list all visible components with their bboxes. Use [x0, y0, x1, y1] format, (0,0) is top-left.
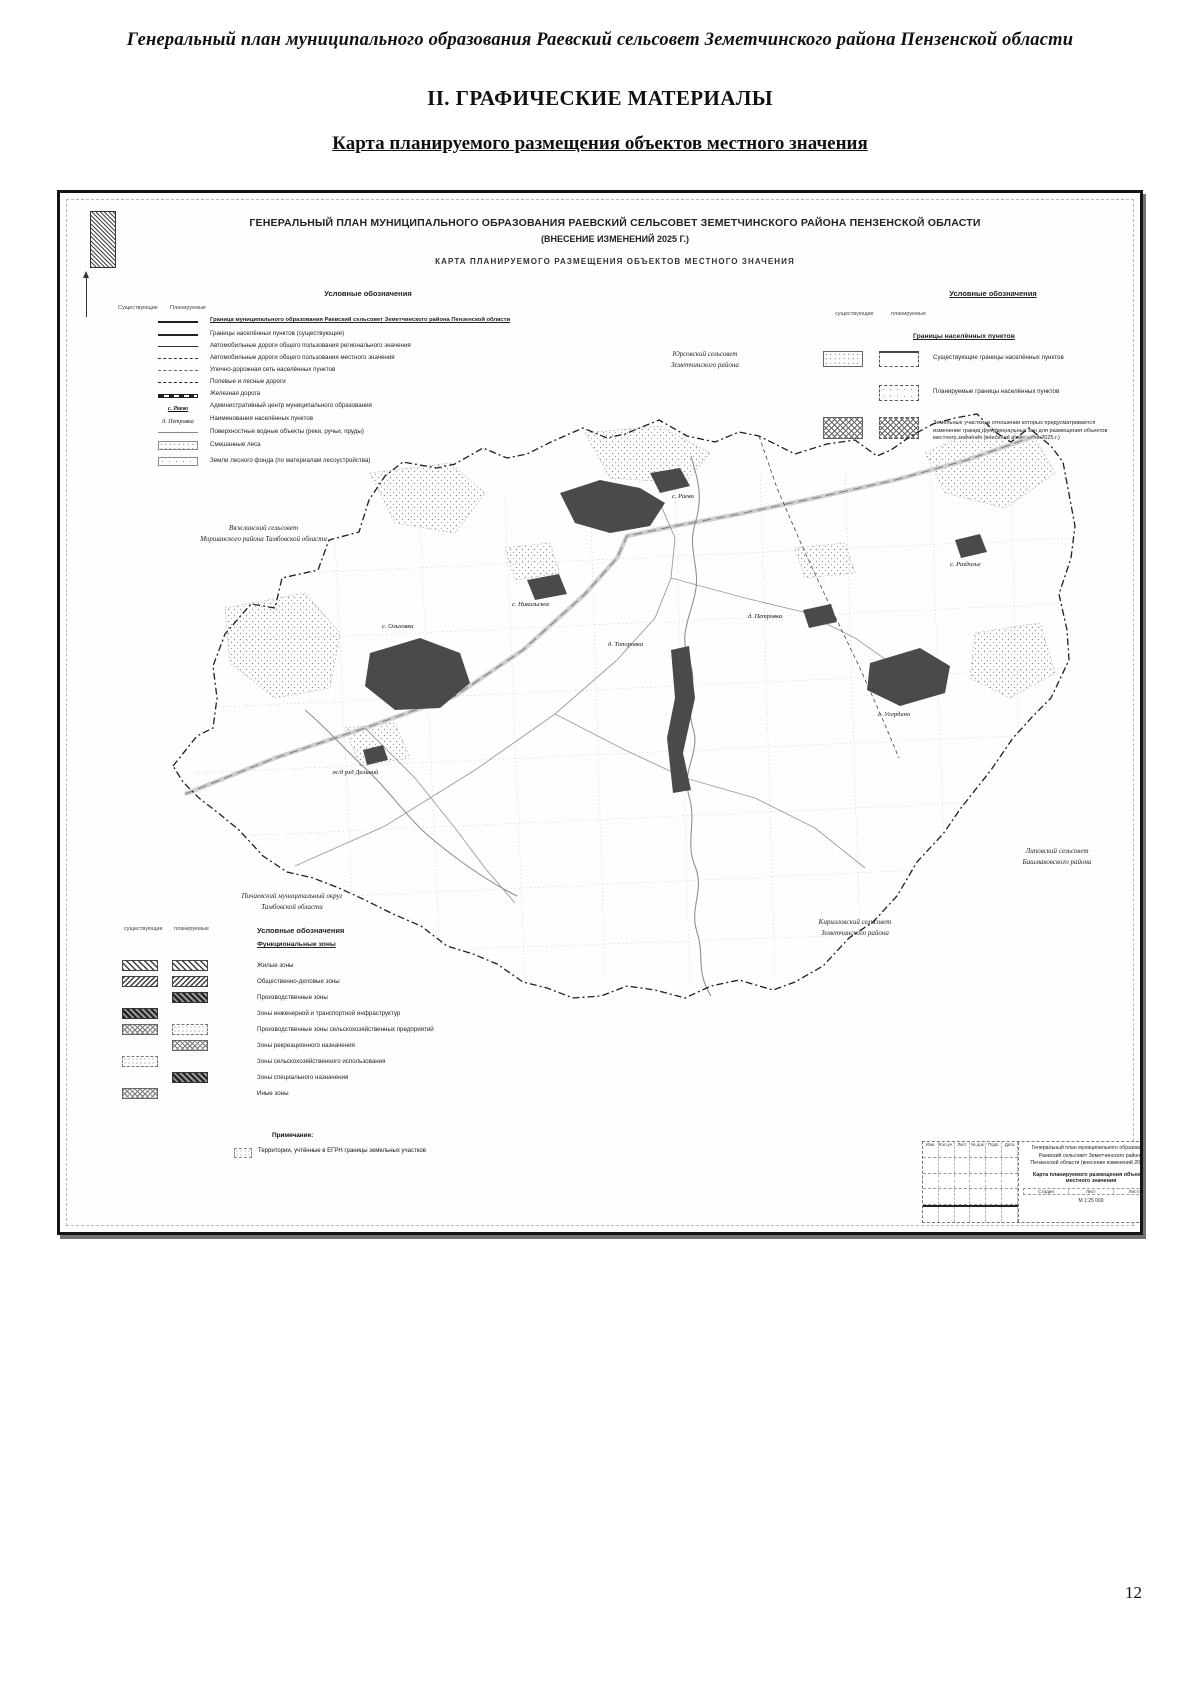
local-road-swatch	[158, 358, 198, 359]
map-title-line1: ГЕНЕРАЛЬНЫЙ ПЛАН МУНИЦИПАЛЬНОГО ОБРАЗОВА…	[120, 217, 1110, 229]
legend-row: Зоны инженерной и транспортной инфрастру…	[122, 1008, 497, 1021]
legend-row: Зоны специального назначения	[122, 1072, 497, 1085]
legend-lines-title: Условные обозначения	[258, 289, 478, 298]
stamp-revision-table: Изм. Кол.уч. Лист № док. Подп. Дата	[923, 1142, 1019, 1222]
note-swatch	[234, 1148, 252, 1158]
settlement-label: с. Ольховка	[382, 623, 414, 630]
settlement-label: с. Усердино	[878, 711, 910, 718]
legend-boundaries-title: Условные обозначения	[903, 289, 1083, 298]
stamp-scale: М 1:25 000	[1023, 1198, 1143, 1204]
legend-row: Полевые и лесные дороги	[118, 378, 538, 389]
settlement-boundary-swatch	[158, 334, 198, 336]
map-frame: ГЕНЕРАЛЬНЫЙ ПЛАН МУНИЦИПАЛЬНОГО ОБРАЗОВА…	[57, 190, 1143, 1235]
legend-boundaries-col-planned: планируемые	[891, 311, 926, 317]
map-title-line3: КАРТА ПЛАНИРУЕМОГО РАЗМЕЩЕНИЯ ОБЪЕКТОВ М…	[120, 257, 1110, 266]
zone-swatch-planned	[172, 1072, 208, 1083]
zone-swatch-planned	[172, 1024, 208, 1035]
legend-row: Производственные зоны	[122, 992, 497, 1005]
zone-swatch-existing	[122, 1088, 158, 1099]
settlement-label: с. Раздолье	[950, 561, 981, 568]
settlement-label: с. Никольское	[512, 601, 550, 608]
section-title: II. ГРАФИЧЕСКИЕ МАТЕРИАЛЫ	[0, 86, 1200, 111]
stamp-stage-cells: Стадия Лист Листов	[1023, 1188, 1143, 1195]
legend-row: Границы населённых пунктов (существующие…	[118, 330, 538, 341]
legend-lines-col-planned: Планируемые	[170, 305, 206, 311]
zone-swatch-existing	[122, 976, 158, 987]
zone-swatch-existing	[122, 1008, 158, 1019]
neighbor-label-east: Липовский сельсоветБашмаковского района	[972, 846, 1142, 867]
legend-row: Зоны рекреационного назначения	[122, 1040, 497, 1053]
settlement-label: с. Раево	[672, 493, 694, 500]
map-title-line2: (ВНЕСЕНИЕ ИЗМЕНЕНИЙ 2025 Г.)	[120, 234, 1110, 244]
legend-boundaries-subheader: Границы населённых пунктов	[913, 333, 1015, 340]
zone-swatch-existing	[122, 1056, 158, 1067]
stamp-project-line2: Раевский сельсовет Земетчинского района	[1023, 1153, 1143, 1161]
field-road-swatch	[158, 382, 198, 383]
neighbor-label-southwest: Пичаевский муниципальный округТамбовской…	[172, 891, 412, 912]
map-caption: Карта планируемого размещения объектов м…	[0, 133, 1200, 155]
neighbor-label-west: Вяжлинский сельсоветМоршанского района Т…	[156, 523, 371, 544]
forest-areas	[225, 426, 1055, 766]
regional-road-swatch	[158, 346, 198, 347]
legend-row: Жилые зоны	[122, 960, 497, 973]
stamp-project-line3: Пензенской области (внесение изменений 2…	[1023, 1160, 1143, 1168]
legend-row: Общественно-деловые зоны	[122, 976, 497, 989]
legend-row: Иные зоны	[122, 1088, 497, 1101]
neighbor-label-north: Юрсовский сельсоветЗеметчинского района	[600, 349, 810, 370]
zone-swatch-planned	[172, 960, 208, 971]
planned-settlement-area-swatch	[879, 351, 919, 367]
note-title: Примечание:	[272, 1132, 313, 1139]
zone-swatch-existing	[122, 960, 158, 971]
legend-row: Автомобильные дороги общего пользования …	[118, 342, 538, 353]
stamp-title-area: Генеральный план муниципального образова…	[1019, 1142, 1143, 1222]
zone-swatch-planned	[172, 992, 208, 1003]
document-header: Генеральный план муниципального образова…	[0, 30, 1200, 51]
street-network-swatch	[158, 370, 198, 371]
legend-row: Автомобильные дороги общего пользования …	[118, 354, 538, 365]
legend-row: Улично-дорожная сеть населённых пунктов	[118, 366, 538, 377]
legend-lines-col-existing: Существующие	[118, 305, 158, 311]
north-arrow-icon	[82, 271, 92, 317]
legend-boundaries-col-existing: существующие	[835, 311, 874, 317]
zone-swatch-planned	[172, 976, 208, 987]
zone-swatch-planned	[172, 1040, 208, 1051]
railway-swatch	[158, 394, 198, 398]
zone-swatch-existing	[122, 1024, 158, 1035]
legend-row: Зоны сельскохозяйственного использования	[122, 1056, 497, 1069]
settlement-label: ж/д рзд Дальний	[332, 769, 378, 776]
settlement-label: д. Петровка	[748, 613, 782, 620]
boundary-line-swatch	[158, 321, 198, 323]
zones-col-planned: планируемые	[174, 926, 209, 932]
note-text: Территории, учтённые в ЕГРН границы земе…	[258, 1148, 426, 1154]
legend-row: Производственные зоны сельскохозяйственн…	[122, 1024, 497, 1037]
stamp-map-name: Карта планируемого размещения объектов м…	[1023, 1172, 1143, 1184]
stamp-project-line1: Генеральный план муниципального образова…	[1023, 1145, 1143, 1153]
existing-settlement-area-swatch	[823, 351, 863, 367]
legend-row: Граница муниципального образования Раевс…	[118, 317, 538, 328]
zones-col-existing: существующие	[124, 926, 163, 932]
settlement-label: д. Топоровка	[608, 641, 643, 648]
document-page: { "page": { "header": "Генеральный план …	[0, 0, 1200, 1697]
drawing-stamp: Изм. Кол.уч. Лист № док. Подп. Дата Гене…	[922, 1141, 1143, 1223]
neighbor-label-southeast: Кирилловский сельсоветЗеметчинского райо…	[750, 917, 960, 938]
page-number: 12	[1125, 1583, 1142, 1603]
corner-hatch-stamp	[90, 211, 116, 268]
zones-title: Условные обозначения	[257, 926, 344, 935]
zones-subheader: Функциональные зоны	[257, 941, 336, 948]
